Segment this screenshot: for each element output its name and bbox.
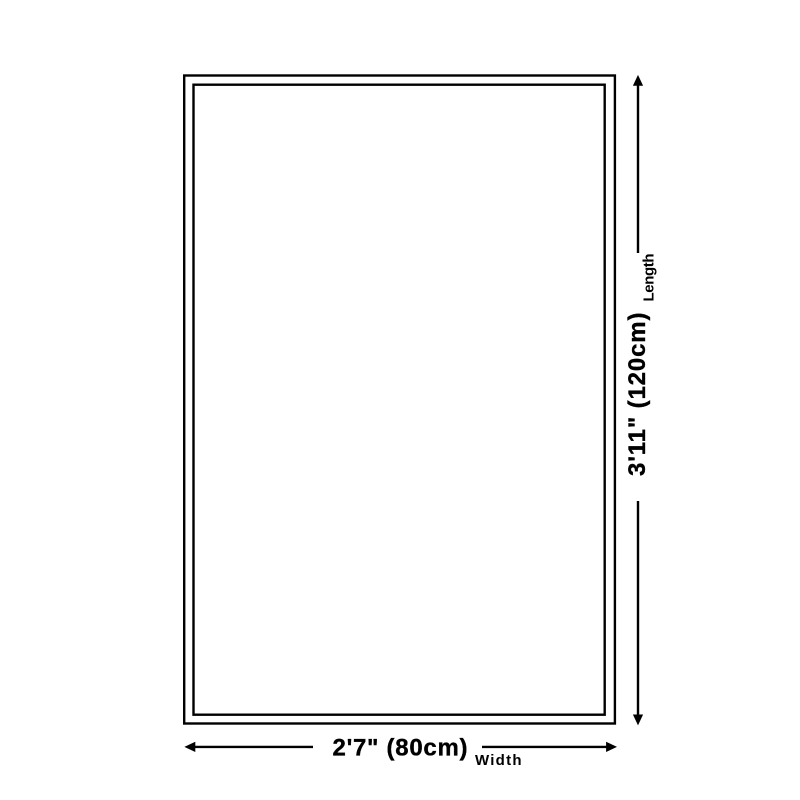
svg-text:Length: Length xyxy=(641,254,658,302)
svg-text:2'7" (80cm): 2'7" (80cm) xyxy=(333,735,468,762)
svg-text:Width: Width xyxy=(475,752,522,769)
svg-text:3'11" (120cm): 3'11" (120cm) xyxy=(624,313,651,477)
